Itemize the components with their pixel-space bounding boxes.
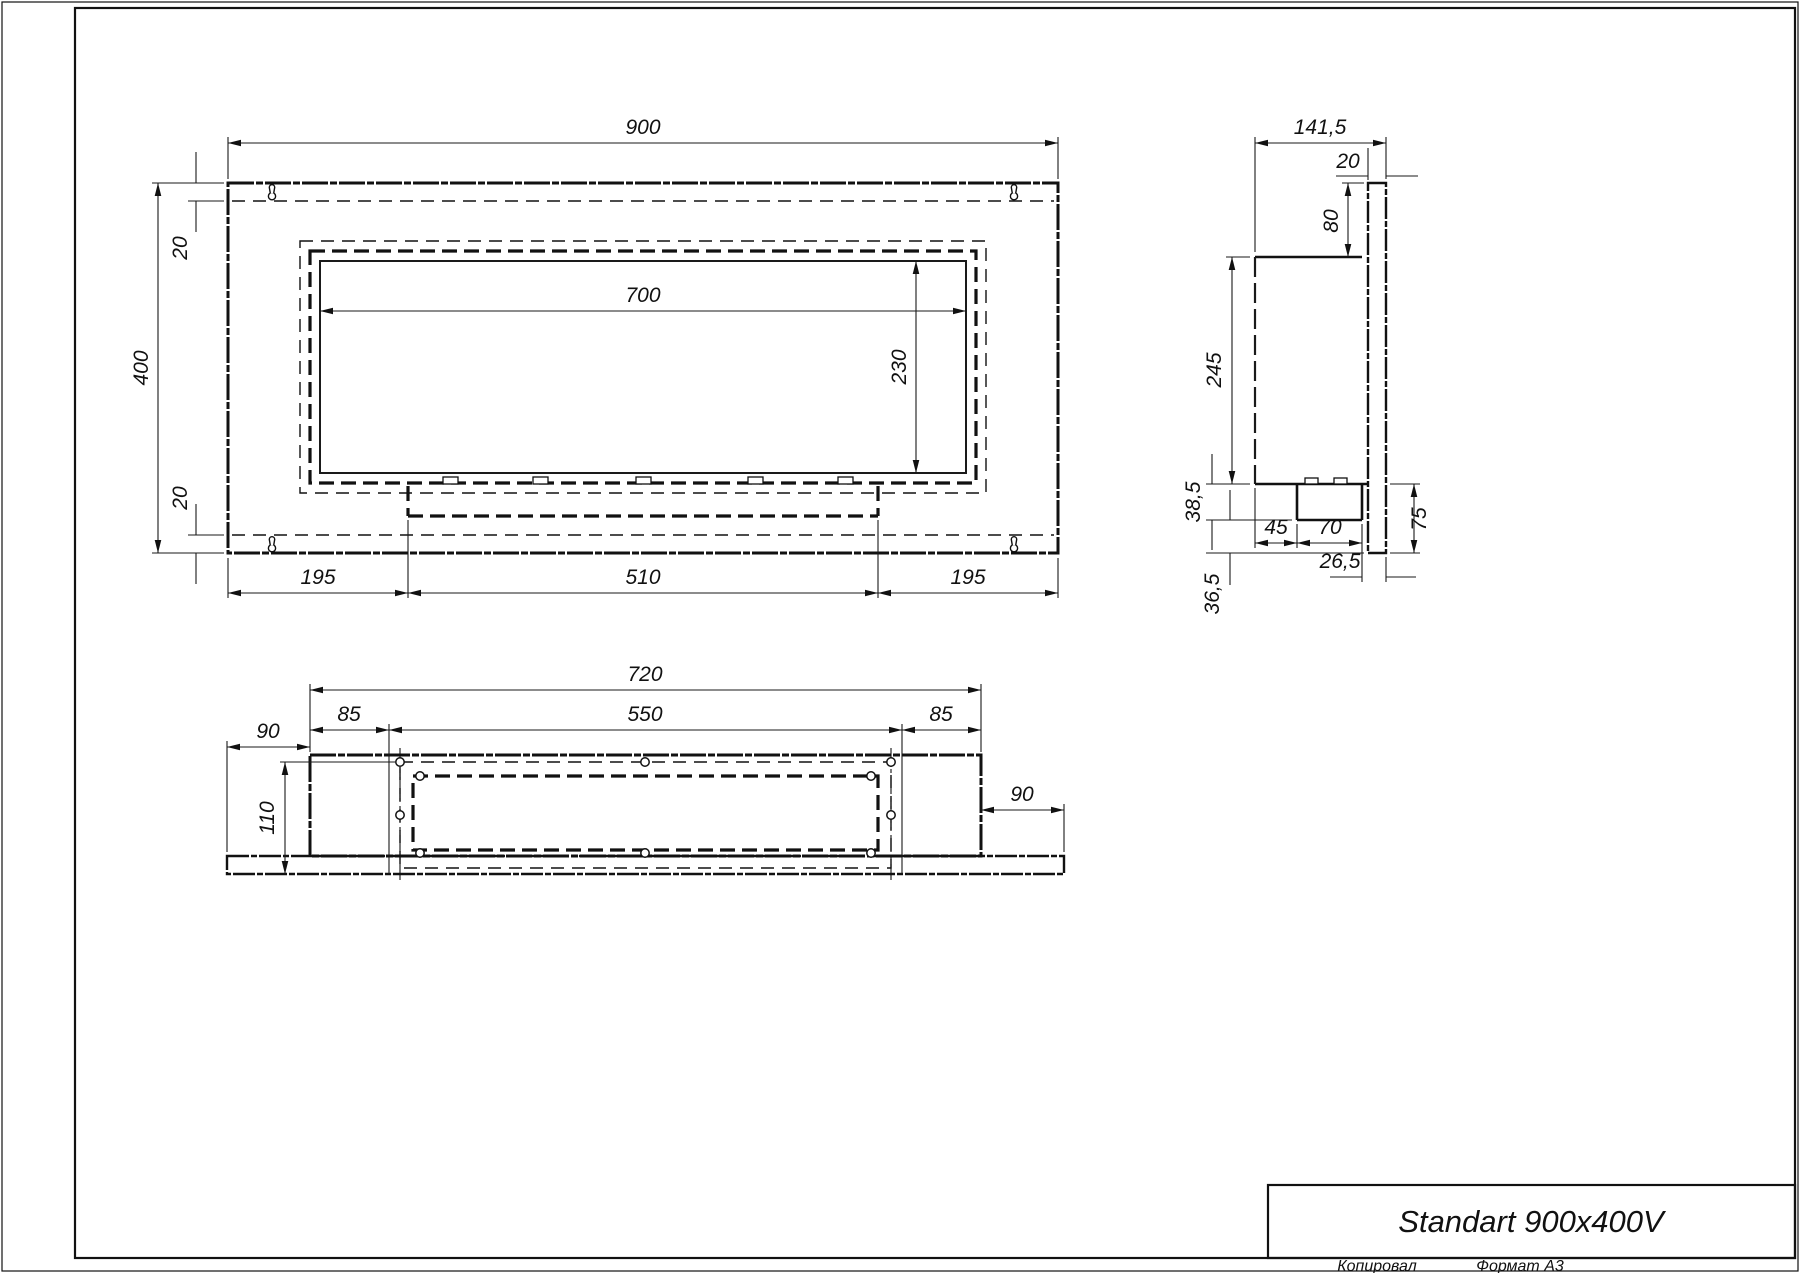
dim-bottom-mount-width: 550 <box>627 703 662 726</box>
dim-front-opening-height: 230 <box>888 349 911 385</box>
footer-copied-label: Копировал <box>1337 1258 1417 1273</box>
front-view: 900 400 20 20 700 230 195 510 195 <box>130 116 1058 598</box>
dim-side-tray-depth: 38,5 <box>1182 481 1205 522</box>
bottom-view: 720 85 550 85 90 90 110 <box>227 663 1064 880</box>
dim-side-top-to-body: 80 <box>1320 209 1343 233</box>
footer-format-label: Формат А3 <box>1476 1258 1564 1273</box>
dim-bottom-body-depth: 110 <box>256 801 279 835</box>
dim-bottom-inset-left: 85 <box>337 703 361 726</box>
dim-side-depth: 141,5 <box>1294 116 1347 139</box>
keyhole-mount-icon <box>1010 185 1017 200</box>
technical-drawing: 900 400 20 20 700 230 195 510 195 <box>0 0 1800 1273</box>
dim-side-tray-width: 70 <box>1318 516 1342 539</box>
dim-side-below-tray: 36,5 <box>1201 573 1224 614</box>
keyhole-mount-icon <box>1010 537 1017 552</box>
dim-front-bottom-right: 195 <box>950 566 985 589</box>
drawing-sheet: 900 400 20 20 700 230 195 510 195 <box>0 0 1800 1273</box>
bottom-plate-outline <box>227 856 1064 874</box>
side-view: 141,5 20 80 245 38,5 36,5 45 70 <box>1182 116 1431 614</box>
dim-front-bottom-center: 510 <box>625 566 660 589</box>
drawing-frame <box>75 8 1795 1258</box>
title-block: Standart 900x400V <box>1268 1185 1795 1258</box>
dim-side-plate-below-body: 75 <box>1408 507 1431 531</box>
bottom-mount-hidden-inner <box>413 776 878 850</box>
dim-front-width: 900 <box>625 116 660 139</box>
title-block-model: Standart 900x400V <box>1398 1204 1667 1239</box>
dim-front-height: 400 <box>130 350 153 385</box>
dim-bottom-overhang-left: 90 <box>256 720 280 743</box>
dim-front-bottom-inset: 20 <box>169 486 192 511</box>
dim-bottom-inset-right: 85 <box>929 703 953 726</box>
bottom-body-outline <box>310 755 981 856</box>
dim-front-bottom-left: 195 <box>300 566 335 589</box>
front-body-outline <box>228 183 1058 553</box>
dim-side-tray-to-plate: 26,5 <box>1319 550 1361 573</box>
dim-front-top-inset: 20 <box>169 236 192 261</box>
dim-bottom-body-width: 720 <box>627 663 662 686</box>
dim-front-opening-width: 700 <box>625 284 660 307</box>
dim-side-body-height: 245 <box>1203 352 1226 388</box>
side-wall-plate <box>1368 183 1386 553</box>
front-opening-hidden-outer <box>300 241 986 493</box>
keyhole-mount-icon <box>268 537 275 552</box>
dim-bottom-overhang-right: 90 <box>1010 783 1034 806</box>
dim-side-tray-offset: 45 <box>1264 516 1288 539</box>
dim-side-plate-thickness: 20 <box>1335 150 1360 173</box>
keyhole-mount-icon <box>268 185 275 200</box>
